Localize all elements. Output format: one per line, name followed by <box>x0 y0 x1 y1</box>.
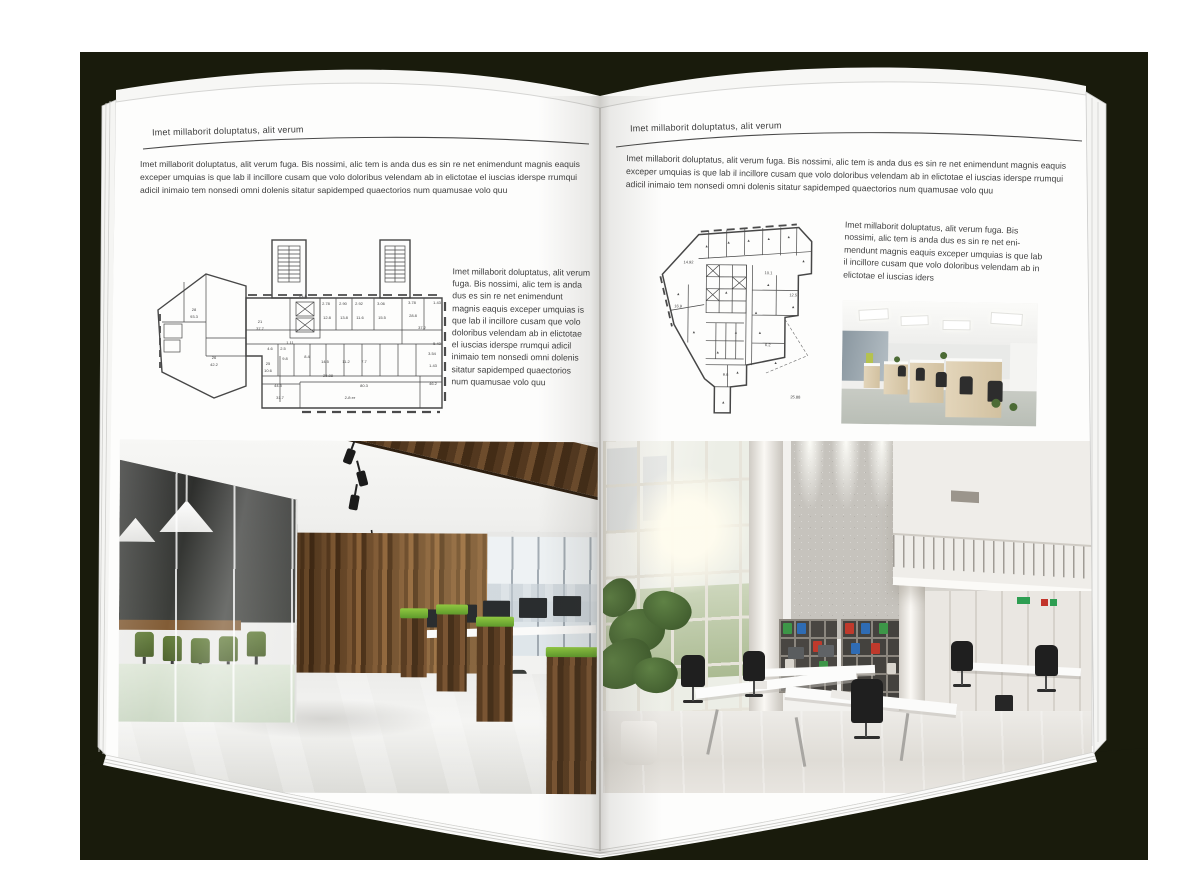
plan-label: 2.90 <box>339 302 347 306</box>
small-plant <box>991 399 1000 408</box>
small-plant <box>894 356 900 362</box>
black-chair <box>1035 645 1058 676</box>
monitor <box>788 647 804 659</box>
plan-label: 37.2 <box>418 326 426 330</box>
blue-binders <box>851 643 860 654</box>
plan-marker: ▴ <box>759 331 761 336</box>
blue-binders <box>861 623 870 634</box>
desk-chair <box>916 368 925 381</box>
plan-marker: ▴ <box>728 241 730 246</box>
plan-label: 1.43 <box>433 301 441 305</box>
right-floorplan: 14.9216.910.112.59.66.225.88▴▴▴▴▴▴▴▴▴▴▴▴… <box>647 214 841 428</box>
right-page-body-text: Imet millaborit doluptatus, alit verum f… <box>843 219 1045 288</box>
plan-label: 25 <box>266 362 270 366</box>
plan-label: 9.6 <box>723 373 729 377</box>
glass-seams <box>118 460 295 723</box>
right-page-header: Imet millaborit doluptatus, alit verum <box>630 117 960 134</box>
plan-label: 9.8 <box>282 357 288 361</box>
plan-label: 21.8 <box>299 294 307 298</box>
wood-cabinet <box>864 363 880 388</box>
papers <box>753 681 767 689</box>
grass-planter <box>437 613 467 691</box>
black-chair <box>743 651 765 681</box>
marble-floor <box>603 711 1092 793</box>
mezzanine <box>893 441 1092 597</box>
header-rule-left <box>143 137 589 149</box>
red-binders <box>871 643 880 654</box>
plan-label: 10.1 <box>765 271 773 275</box>
plan-marker: ▴ <box>725 291 727 296</box>
left-page-intro: Imet millaborit doluptatus, alit verum f… <box>140 158 592 197</box>
green-binders <box>783 623 792 634</box>
plan-marker: ▴ <box>677 292 679 297</box>
floor-reflection <box>603 711 1092 793</box>
right-office-photo <box>603 441 1092 793</box>
black-chair <box>851 679 883 723</box>
safety-sign <box>1050 599 1057 606</box>
grass-planter <box>401 617 427 677</box>
plan-marker: ▴ <box>788 235 790 240</box>
plan-label: 12.8 <box>323 316 331 320</box>
black-chair <box>681 655 705 687</box>
plan-label: 14.5 <box>321 360 329 364</box>
magazine-spread-mockup: Imet millaborit doluptatus, alit verum I… <box>0 0 1200 891</box>
balcony-railing <box>893 533 1092 579</box>
plan-label: 28 <box>192 308 196 312</box>
plan-label: 25.88 <box>323 374 333 378</box>
desk-chair <box>960 376 973 394</box>
plan-label: 2.92 <box>355 302 363 306</box>
left-page-side-text: Imet millaborit doluptatus, alit verum f… <box>451 265 590 388</box>
grass-planter <box>476 626 513 722</box>
plan-label: 3.78 <box>408 301 416 305</box>
plan-label: 25.88 <box>790 395 800 399</box>
plan-marker: ▴ <box>736 371 738 376</box>
ceiling-light <box>858 308 889 321</box>
plan-label: 46.2 <box>429 382 437 386</box>
wall-wash-light <box>795 441 825 511</box>
left-floorplan: 2893.32137.71.112642.22510.62.782.902.92… <box>150 226 450 420</box>
monitor <box>553 596 581 616</box>
plan-label: 2.5 <box>280 347 286 351</box>
black-chair <box>951 641 973 671</box>
plan-marker: ▴ <box>748 239 750 244</box>
plan-marker: ▴ <box>767 283 769 288</box>
sun-glow <box>623 461 753 598</box>
plan-marker: ▴ <box>768 237 770 242</box>
left-office-photo <box>118 440 598 794</box>
exit-sign <box>1017 597 1030 604</box>
plan-label: 4.6 <box>267 347 273 351</box>
glass-meeting-room <box>118 460 297 723</box>
red-binders <box>845 623 854 634</box>
right-page-intro: Imet millaborit doluptatus, alit verum f… <box>626 152 1079 199</box>
header-rule-right <box>616 133 1082 147</box>
plan-label: 16.9 <box>674 304 682 308</box>
white-binders <box>887 663 896 674</box>
concrete-wall <box>791 441 901 639</box>
plan-label: 3.06 <box>377 302 385 306</box>
desk-chair <box>898 365 906 376</box>
plan-label: 15.5 <box>378 316 386 320</box>
blue-binders <box>797 623 806 634</box>
window-frame-top <box>487 532 597 538</box>
plan-label: 28.8 <box>409 314 417 318</box>
plan-label: 14.92 <box>683 260 693 264</box>
plan-marker: ▴ <box>717 351 719 356</box>
fire-sign <box>1041 599 1048 606</box>
plan-label: 1.43 <box>429 364 437 368</box>
wall-wash-light <box>831 441 861 511</box>
plan-marker: ▴ <box>722 401 724 406</box>
left-floorplan-drawing <box>150 226 450 420</box>
plan-marker: ▴ <box>774 361 776 366</box>
plan-label: 12.5 <box>789 293 797 297</box>
small-office-photo <box>841 301 1038 427</box>
plan-label: 8.4 <box>304 355 310 359</box>
plant-pot <box>621 721 657 765</box>
plan-label: 93.3 <box>190 315 198 319</box>
ceiling-light <box>900 315 928 326</box>
ceiling-light <box>942 320 970 330</box>
ceiling-light <box>990 312 1023 326</box>
plan-label: 80.3 <box>360 384 368 388</box>
grass-planter <box>546 656 598 794</box>
plan-label: 10.6 <box>264 369 272 373</box>
plan-label: 13.8 <box>340 316 348 320</box>
small-plant <box>940 352 947 359</box>
plan-marker: ▴ <box>735 331 737 336</box>
plan-label: 31.7 <box>276 396 284 400</box>
plan-label: 5.43 <box>433 342 441 346</box>
plan-marker: ▴ <box>755 311 757 316</box>
plan-label: 2.78 <box>322 302 330 306</box>
plan-label: 42.2 <box>210 363 218 367</box>
plan-label: 44.5 <box>274 384 282 388</box>
plan-label: 37.7 <box>256 327 264 331</box>
plan-label: 21 <box>258 320 262 324</box>
green-binders <box>879 623 888 634</box>
desk-chair <box>936 372 947 387</box>
plan-marker: ▴ <box>693 330 695 335</box>
plan-label: 3.54 <box>428 352 436 356</box>
plan-label: 11.2 <box>342 360 350 364</box>
plan-label: 2-й эт <box>345 396 356 400</box>
small-plant <box>1009 403 1017 411</box>
plan-label: 7.7 <box>361 360 367 364</box>
plan-marker: ▴ <box>792 305 794 310</box>
plan-marker: ▴ <box>802 259 804 264</box>
plan-label: 11.6 <box>356 316 364 320</box>
glass-overlay <box>118 460 297 723</box>
white-partition <box>1010 343 1038 395</box>
monitor <box>818 645 834 657</box>
plan-label: 1.11 <box>286 341 294 345</box>
right-floorplan-drawing <box>647 214 841 428</box>
vent-grille <box>951 490 979 503</box>
plan-label: 26 <box>212 356 216 360</box>
monitor <box>519 598 547 618</box>
plan-marker: ▴ <box>705 244 707 249</box>
plan-label: 6.2 <box>765 343 771 347</box>
left-page-header: Imet millaborit doluptatus, alit verum <box>152 121 482 138</box>
